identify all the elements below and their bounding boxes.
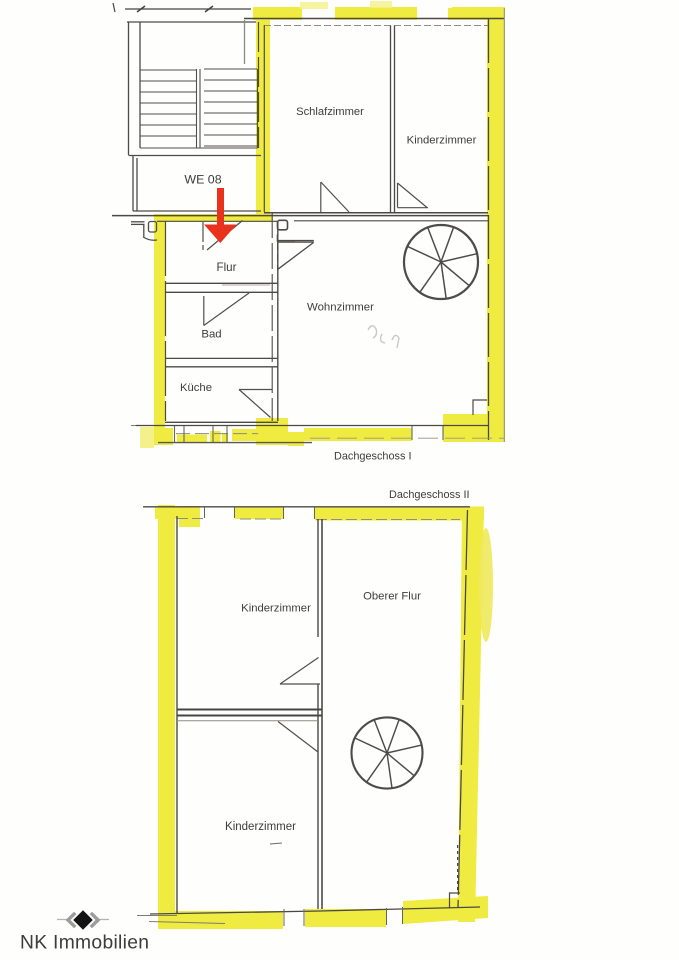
svg-text:WE 08: WE 08 xyxy=(184,173,221,187)
svg-text:NK Immobilien: NK Immobilien xyxy=(20,933,149,954)
svg-text:Kinderzimmer: Kinderzimmer xyxy=(225,821,296,833)
svg-text:Flur: Flur xyxy=(217,261,237,274)
svg-text:Wohnzimmer: Wohnzimmer xyxy=(307,302,374,314)
svg-text:Dachgeschoss I: Dachgeschoss I xyxy=(334,451,411,463)
svg-text:Dachgeschoss II: Dachgeschoss II xyxy=(389,489,470,501)
svg-text:Oberer Flur: Oberer Flur xyxy=(363,591,421,603)
svg-text:Kinderzimmer: Kinderzimmer xyxy=(407,135,477,147)
svg-text:Schlafzimmer: Schlafzimmer xyxy=(296,106,364,118)
svg-text:Kinderzimmer: Kinderzimmer xyxy=(241,603,311,615)
svg-text:Küche: Küche xyxy=(180,382,212,394)
svg-text:Bad: Bad xyxy=(201,329,221,341)
